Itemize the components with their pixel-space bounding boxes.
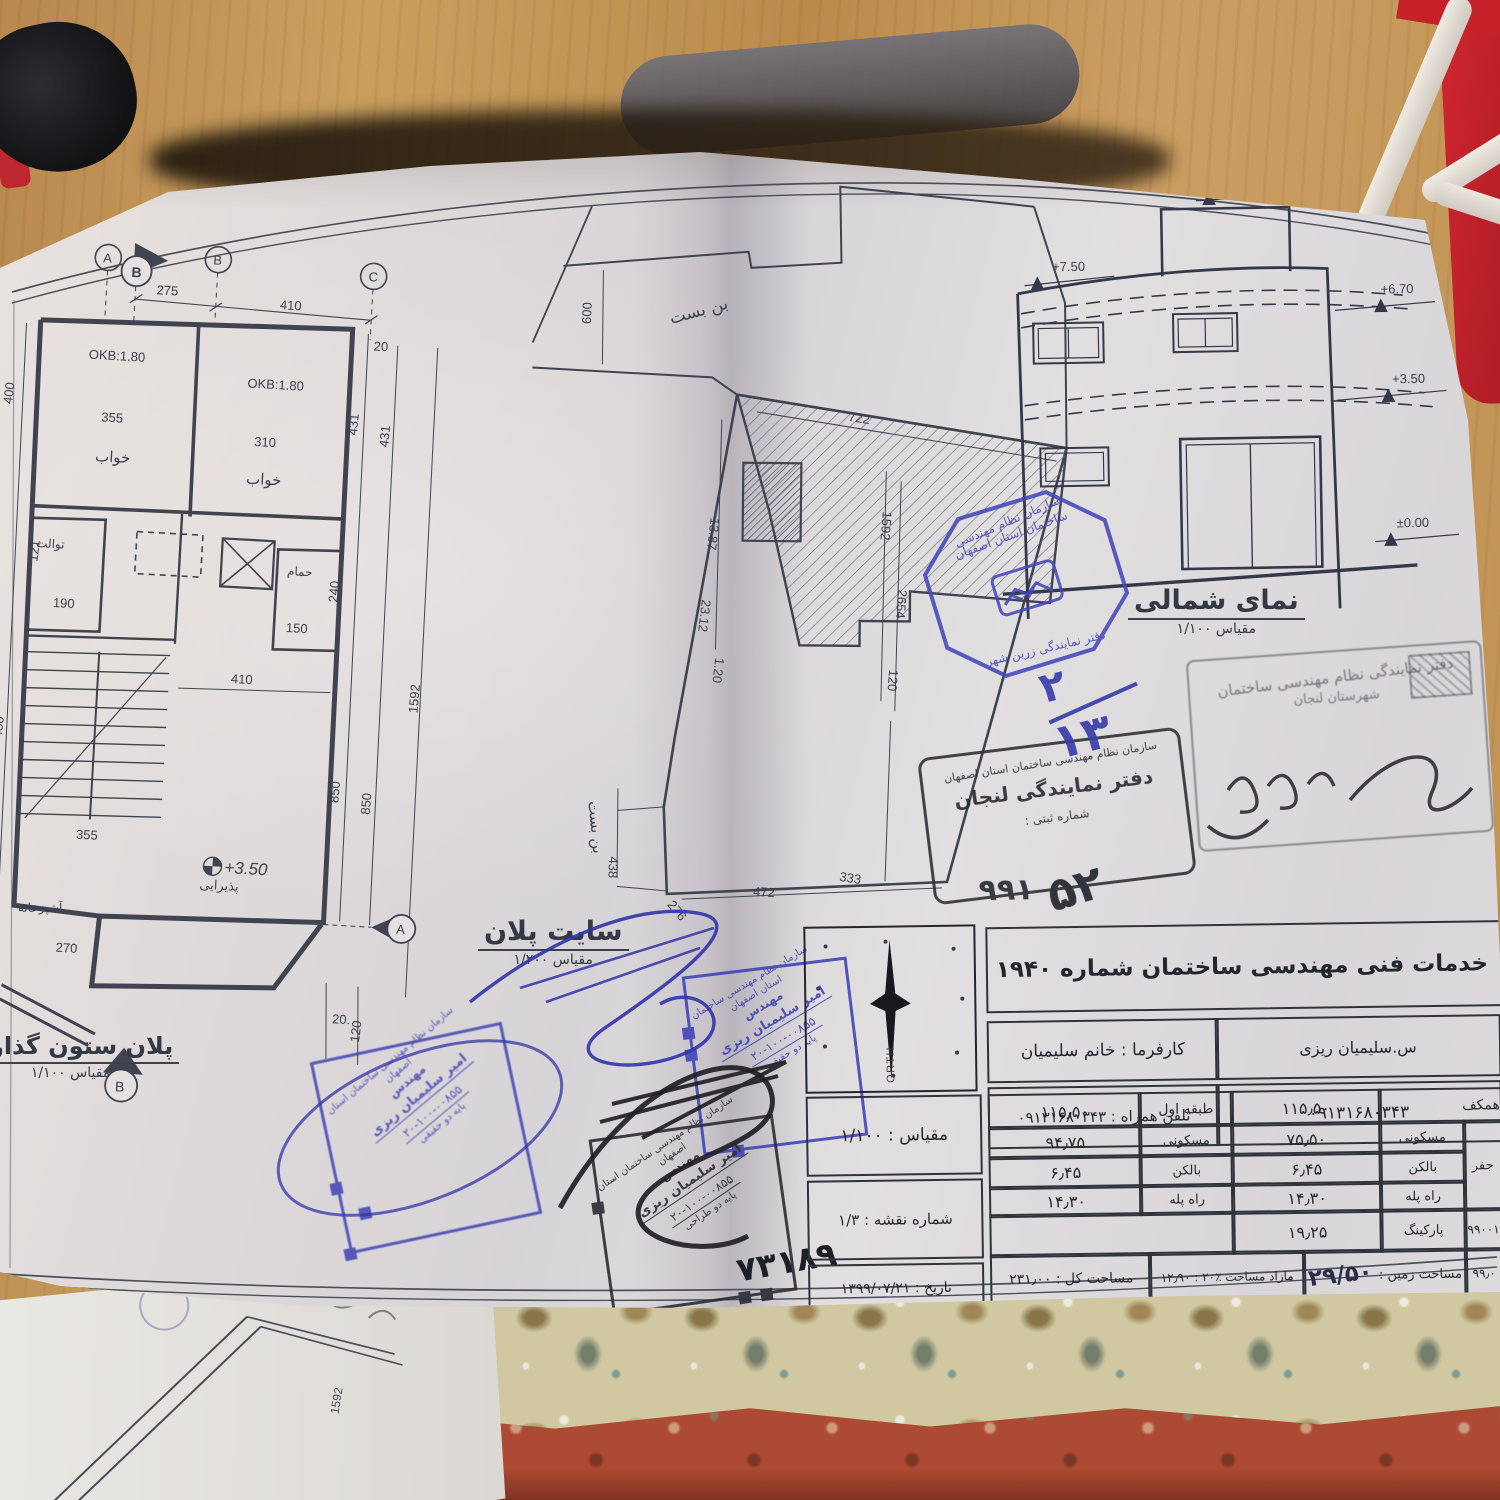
svg-text:410: 410 — [231, 671, 254, 687]
room-label-bath: حمام — [287, 564, 313, 579]
svg-text:190: 190 — [53, 595, 76, 611]
title-block: NORTH خدمات فنی مهندسی ساختمان شماره ۱۹۴… — [795, 910, 1500, 1328]
elevation-title: نمای شمالی مقیاس ۱/۱۰۰ — [1128, 585, 1305, 637]
stamp-corner-square — [591, 1201, 605, 1215]
north-arrow-icon: NORTH — [857, 936, 923, 1083]
lenjan-stamp-number: ۹۹۱ — [978, 872, 1034, 908]
photo-architectural-blueprint: 1592 — [0, 0, 1500, 1500]
svg-text:355: 355 — [76, 827, 99, 843]
svg-text:472: 472 — [753, 884, 776, 900]
svg-text:333: 333 — [839, 869, 863, 887]
stamp-corner-square — [329, 1182, 343, 1196]
svg-text:1592: 1592 — [405, 684, 423, 714]
title-block-header: خدمات فنی مهندسی ساختمان شماره ۱۹۴۰ — [985, 920, 1500, 1013]
room-label-bedroom: خواب — [246, 470, 282, 490]
sheet-number-cell: شماره نقشه : ۱/۳ — [807, 1178, 984, 1260]
svg-text:438: 438 — [605, 856, 621, 878]
svg-text:275: 275 — [156, 282, 179, 298]
svg-text:B: B — [131, 264, 142, 281]
drawing-sheet: 275 410 OKB:1.80 OKB:1.80 355 310 400 43… — [0, 0, 1500, 1500]
floor-plan-title: پلان ستون گذاری مقیاس ۱/۱۰۰ — [0, 1032, 179, 1081]
area-value: ۱۹٫۲۵ — [1231, 1209, 1384, 1255]
svg-text:276: 276 — [664, 897, 689, 923]
svg-text:+6.70: +6.70 — [1380, 281, 1413, 297]
stamp-corner-square — [760, 1288, 774, 1302]
svg-text:240: 240 — [325, 580, 342, 603]
svg-text:A: A — [103, 250, 113, 265]
svg-text:270: 270 — [55, 940, 78, 956]
svg-text:OKB:1.80: OKB:1.80 — [88, 347, 145, 365]
svg-text:A: A — [396, 922, 406, 937]
svg-text:400: 400 — [0, 381, 18, 404]
svg-text:1592: 1592 — [878, 511, 895, 541]
room-label-bedroom: خواب — [95, 447, 131, 467]
svg-text:355: 355 — [101, 409, 124, 425]
stamp-corner-square — [358, 1206, 372, 1220]
floor-plan: 275 410 OKB:1.80 OKB:1.80 355 310 400 43… — [0, 204, 478, 1139]
scale-cell: مقیاس : ۱/۱۰۰ — [806, 1094, 983, 1176]
north-arrow-box: NORTH — [803, 924, 977, 1093]
handshake-icon — [1002, 579, 1053, 605]
land-area-label: مساحت زمین : — [1379, 1266, 1462, 1282]
svg-text:310: 310 — [254, 434, 277, 450]
svg-text:+3.50: +3.50 — [1392, 371, 1425, 387]
svg-text:431: 431 — [376, 425, 393, 448]
svg-text:1.20: 1.20 — [709, 657, 727, 684]
svg-text:850: 850 — [358, 792, 375, 815]
svg-text:120: 120 — [347, 1020, 365, 1043]
area-edge-value: ۹۹٫۰ — [1464, 1247, 1500, 1300]
site-plan-title: سایت پلان مقیاس ۱/۲۰۰ — [478, 916, 629, 968]
svg-text:150: 150 — [286, 620, 309, 636]
stamp-corner-square — [343, 1247, 357, 1261]
area-edge-value: ۹۹۰۰۱ — [1463, 1207, 1500, 1252]
land-area-value-handwritten: ۲۹/۵۰ — [1307, 1259, 1374, 1292]
svg-text:B: B — [213, 252, 222, 267]
stamp-corner-square — [685, 1049, 698, 1062]
svg-text:600: 600 — [579, 302, 595, 324]
engineer-stamp-black: سازمان نظام مهندسی ساختمان استان اصفهان … — [589, 1114, 798, 1316]
area-label: پارکینگ — [1379, 1208, 1468, 1253]
svg-text:410: 410 — [280, 297, 303, 313]
area-side-label: جفر — [1462, 1119, 1500, 1212]
svg-text:722: 722 — [847, 409, 871, 427]
room-label-living: پذیرایی — [199, 878, 239, 895]
svg-text:2654: 2654 — [893, 589, 910, 619]
gray-stamp-lenjan-county: دفتر نمایندگی نظام مهندسی ساختمان شهرستا… — [1186, 640, 1495, 852]
engineer-stamp-blue-smudged: سازمان نظام مهندسی ساختمان استان اصفهان … — [310, 1022, 542, 1254]
client-cell: کارفرما : خانم سلیمیان — [987, 1018, 1220, 1083]
svg-text:+3.50: +3.50 — [224, 858, 269, 879]
svg-text:13.87: 13.87 — [704, 517, 723, 551]
svg-text:±0.00: ±0.00 — [1397, 515, 1430, 531]
svg-text:120: 120 — [884, 669, 901, 692]
svg-text:OKB:1.80: OKB:1.80 — [247, 376, 304, 394]
svg-text:C: C — [368, 269, 378, 285]
svg-text:850: 850 — [326, 781, 343, 804]
svg-text:20: 20 — [373, 339, 388, 355]
stamp-corner-square — [738, 1291, 752, 1305]
client-name-right: س.سلیمیان ریزی — [1215, 1014, 1500, 1080]
room-label-toilet: توالت — [36, 536, 65, 552]
floor-plan-linework: 275 410 OKB:1.80 OKB:1.80 355 310 400 43… — [0, 204, 478, 1139]
room-label-kitchen: آشپزخانه — [18, 901, 63, 915]
svg-text:20.: 20. — [332, 1011, 351, 1027]
svg-text:+7.50: +7.50 — [1052, 259, 1085, 275]
svg-text:431: 431 — [345, 413, 362, 436]
